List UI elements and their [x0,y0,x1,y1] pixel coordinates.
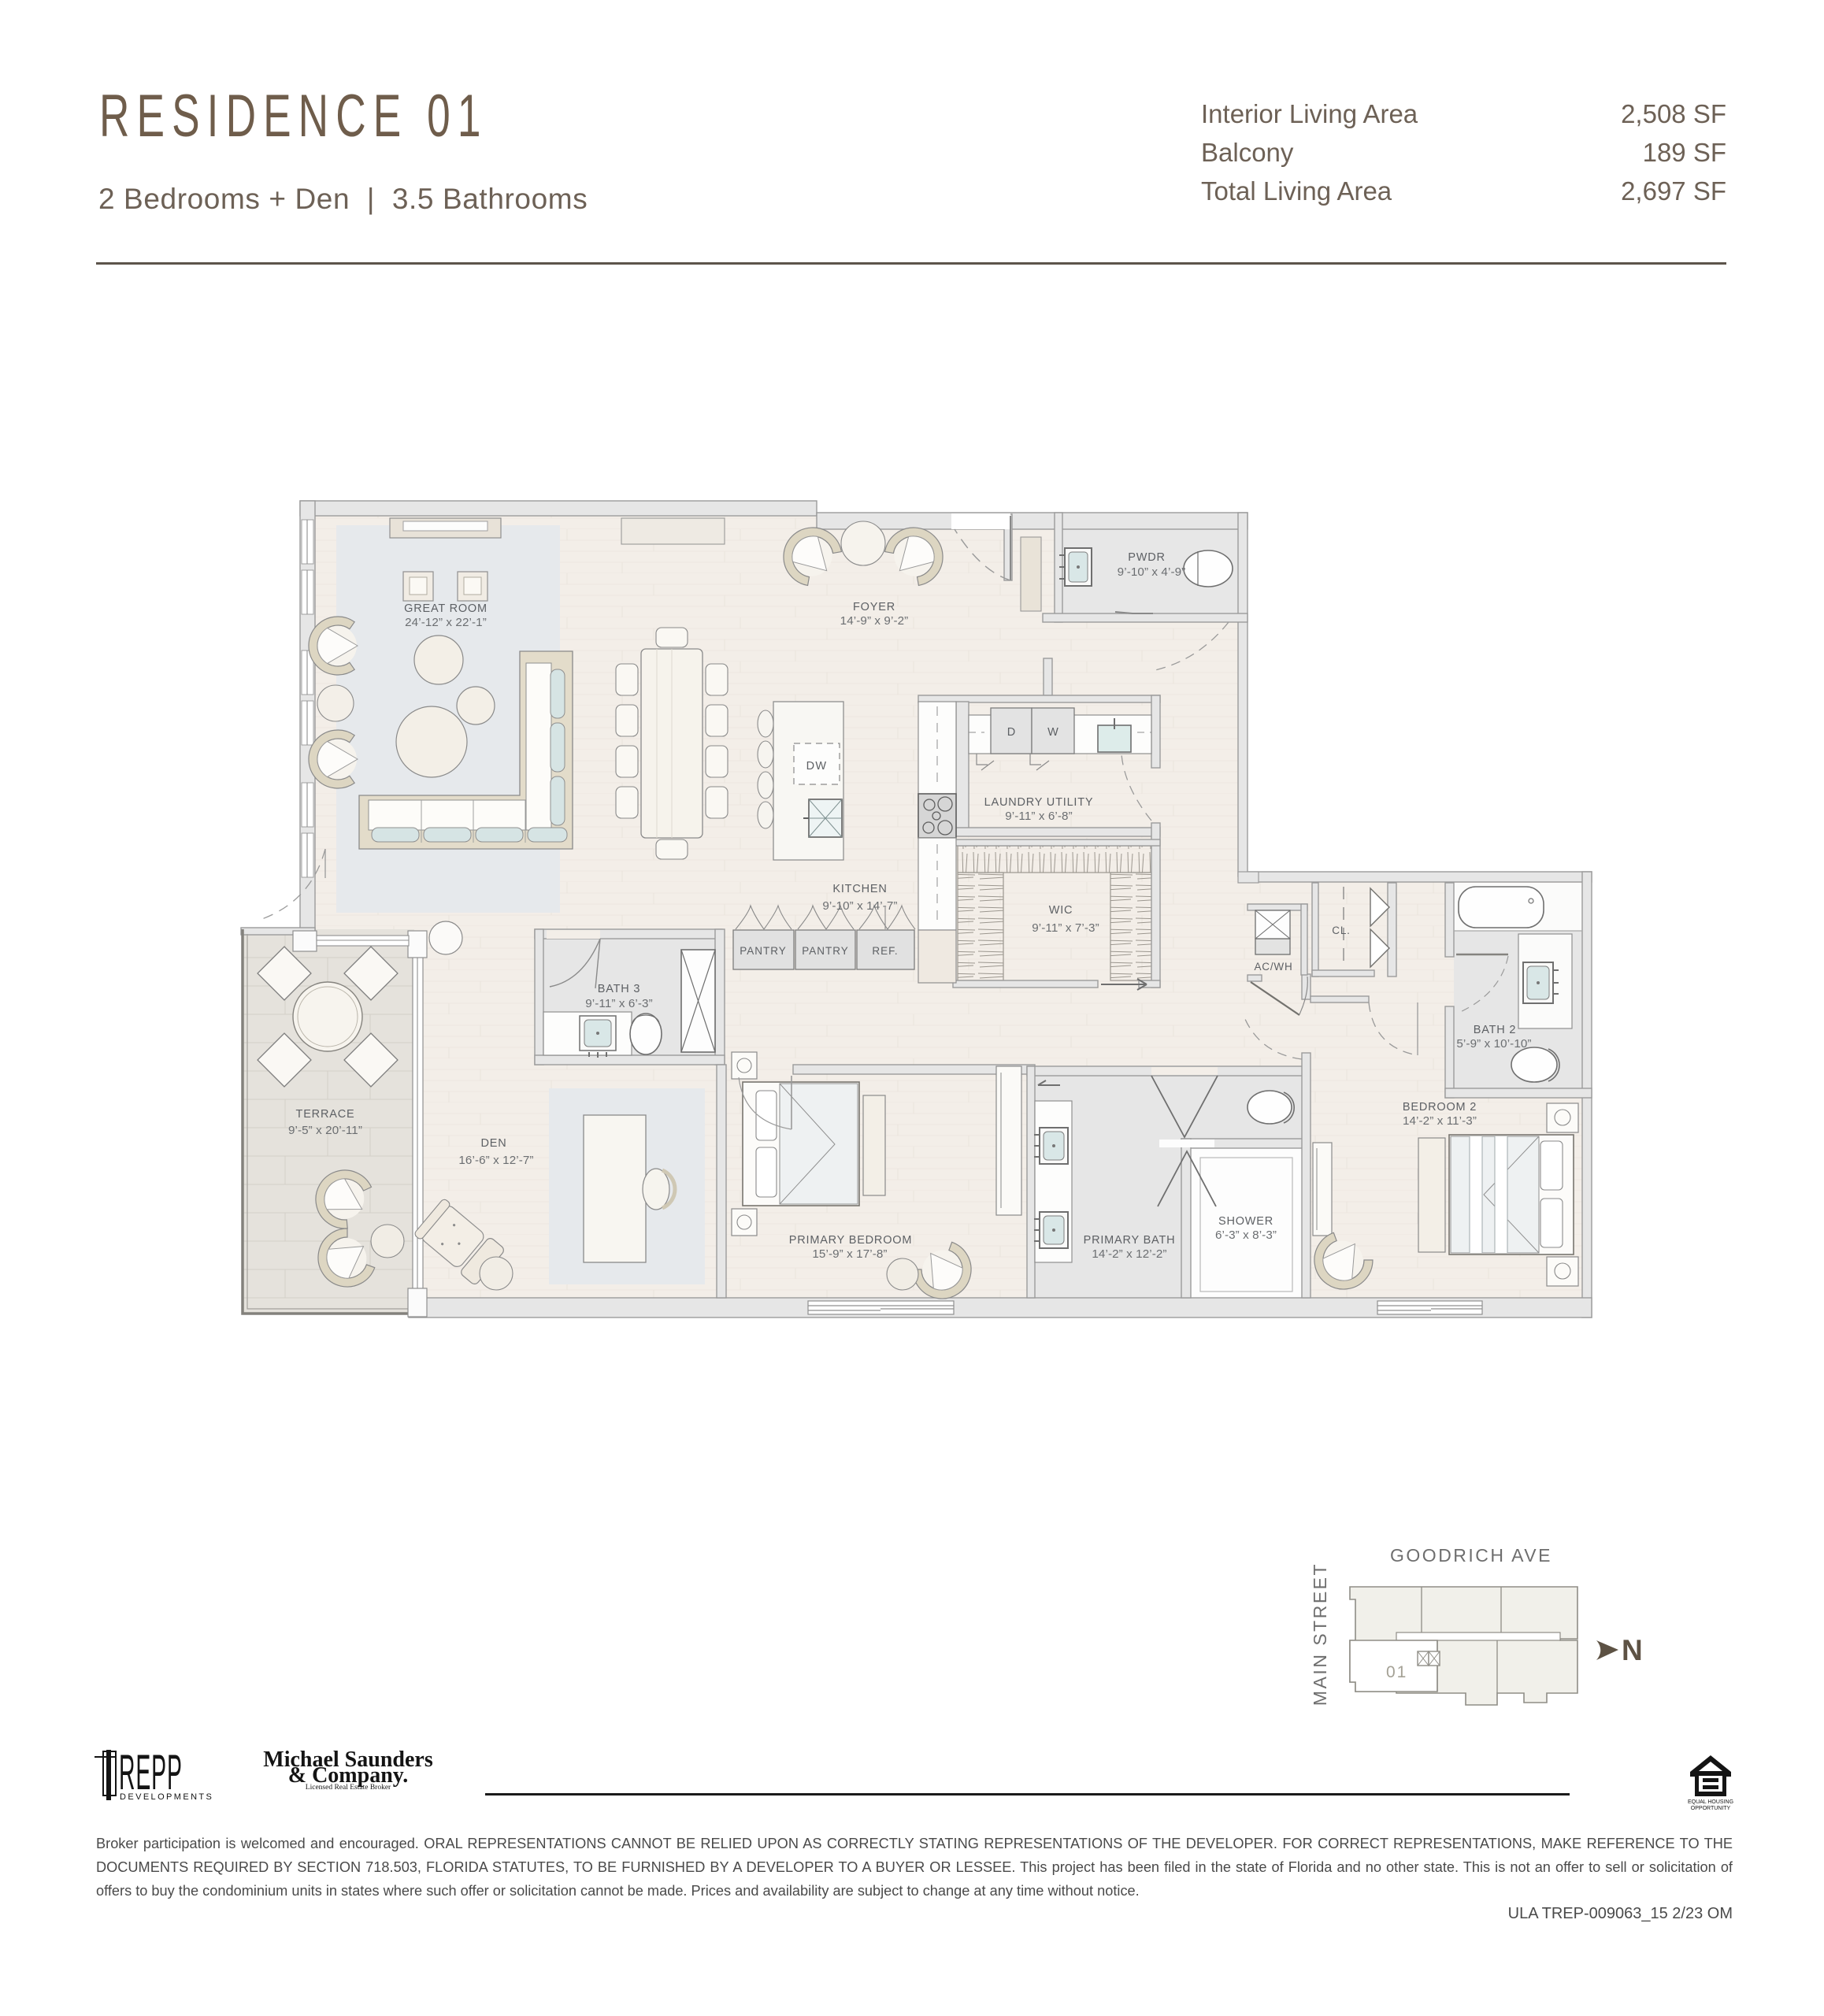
svg-text:DEVELOPMENTS: DEVELOPMENTS [120,1792,213,1802]
svg-text:Licensed Real Estate Broker: Licensed Real Estate Broker [306,1784,391,1792]
svg-text:16’-6” x 12’-7”: 16’-6” x 12’-7” [458,1154,533,1167]
svg-text:14’-9” x 9’-2”: 14’-9” x 9’-2” [840,614,909,628]
svg-text:AC/WH: AC/WH [1255,961,1293,973]
svg-text:KITCHEN: KITCHEN [832,883,887,895]
svg-text:14’-2” x 11’-3”: 14’-2” x 11’-3” [1403,1114,1477,1128]
svg-text:WIC: WIC [1049,904,1073,917]
svg-text:W: W [1047,726,1058,739]
svg-text:PRIMARY BEDROOM: PRIMARY BEDROOM [789,1234,913,1247]
svg-text:D: D [1007,726,1015,739]
svg-text:N: N [1622,1634,1643,1666]
svg-text:REF.: REF. [872,945,898,957]
svg-text:TERRACE: TERRACE [296,1108,355,1121]
svg-text:BEDROOM 2: BEDROOM 2 [1403,1101,1477,1114]
svg-text:PANTRY: PANTRY [740,945,787,957]
svg-text:15’-9” x 17’-8”: 15’-9” x 17’-8” [812,1247,887,1261]
svg-text:FOYER: FOYER [853,601,895,613]
svg-text:SHOWER: SHOWER [1218,1215,1273,1228]
svg-text:9’-11” x 7’-3”: 9’-11” x 7’-3” [1032,921,1099,935]
svg-text:DW: DW [806,760,828,773]
svg-text:01: 01 [1386,1663,1407,1681]
svg-text:9’-11” x 6’-3”: 9’-11” x 6’-3” [585,997,653,1010]
svg-text:GOODRICH AVE: GOODRICH AVE [1390,1545,1552,1566]
svg-text:6’-3” x 8’-3”: 6’-3” x 8’-3” [1215,1228,1277,1242]
svg-text:5’-9” x 10’-10”: 5’-9” x 10’-10” [1456,1037,1531,1051]
svg-text:BATH 3: BATH 3 [598,983,641,995]
svg-text:BATH 2: BATH 2 [1474,1024,1517,1036]
svg-text:OPPORTUNITY: OPPORTUNITY [1691,1806,1731,1811]
svg-text:PWDR: PWDR [1128,551,1166,564]
svg-text:CL.: CL. [1332,925,1350,936]
svg-text:MAIN STREET: MAIN STREET [1310,1562,1330,1706]
svg-text:24’-12” x 22’-1”: 24’-12” x 22’-1” [405,616,487,629]
svg-text:PANTRY: PANTRY [802,945,849,957]
svg-text:9’-10” x 14’-7”: 9’-10” x 14’-7” [822,899,897,913]
svg-text:GREAT ROOM: GREAT ROOM [404,602,488,615]
svg-text:LAUNDRY UTILITY: LAUNDRY UTILITY [984,796,1094,809]
svg-text:EQUAL HOUSING: EQUAL HOUSING [1688,1799,1733,1805]
svg-text:PRIMARY BATH: PRIMARY BATH [1084,1234,1176,1247]
svg-text:14’-2” x 12’-2”: 14’-2” x 12’-2” [1092,1247,1166,1261]
svg-text:DEN: DEN [480,1137,506,1150]
svg-text:9’-11” x 6’-8”: 9’-11” x 6’-8” [1005,810,1073,823]
svg-text:9’-5” x 20’-11”: 9’-5” x 20’-11” [288,1124,362,1137]
svg-text:9’-10” x 4’-9”: 9’-10” x 4’-9” [1118,565,1186,579]
